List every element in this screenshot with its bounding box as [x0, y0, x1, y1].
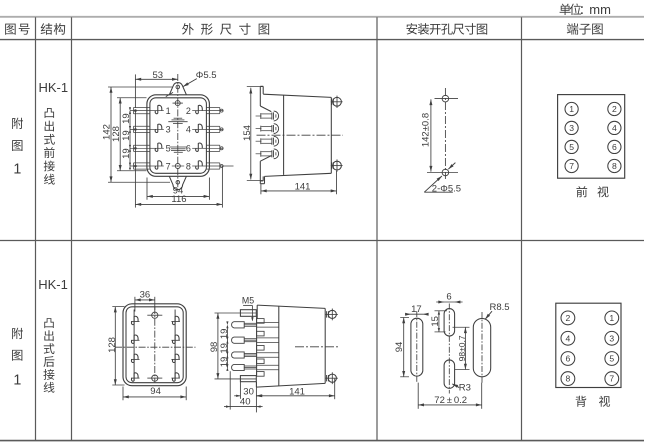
svg-text:36: 36 — [140, 290, 151, 301]
svg-text:3: 3 — [569, 123, 574, 133]
svg-text:19: 19 — [219, 329, 230, 340]
svg-text:R8.5: R8.5 — [490, 302, 510, 313]
svg-text:98±0.7: 98±0.7 — [457, 335, 467, 361]
svg-text:8: 8 — [612, 161, 617, 171]
svg-text:2: 2 — [612, 104, 617, 114]
svg-text:6: 6 — [566, 354, 571, 364]
svg-text:141: 141 — [289, 386, 305, 397]
svg-text:1: 1 — [13, 162, 21, 178]
svg-text:1: 1 — [569, 104, 574, 114]
svg-text:6: 6 — [186, 144, 191, 154]
svg-text:1: 1 — [13, 372, 21, 388]
svg-text:8: 8 — [566, 374, 571, 384]
svg-text:5: 5 — [609, 354, 614, 364]
svg-text:mm: mm — [589, 2, 611, 17]
svg-text:4: 4 — [612, 123, 617, 133]
svg-text:19: 19 — [121, 113, 132, 124]
svg-text:7: 7 — [166, 161, 171, 171]
svg-text:4: 4 — [566, 333, 571, 343]
svg-text:141: 141 — [295, 181, 311, 192]
svg-text:1: 1 — [166, 106, 171, 116]
svg-text:2-Φ5.5: 2-Φ5.5 — [432, 183, 461, 194]
svg-text:5: 5 — [166, 144, 171, 154]
svg-text:94: 94 — [394, 342, 405, 353]
svg-text:17: 17 — [411, 304, 422, 315]
svg-text:2: 2 — [566, 313, 571, 323]
svg-text:5: 5 — [569, 142, 574, 152]
svg-text:HK-1: HK-1 — [38, 277, 68, 292]
svg-text:142±0.8: 142±0.8 — [421, 113, 432, 147]
svg-text:94: 94 — [150, 386, 161, 397]
svg-text:3: 3 — [166, 125, 171, 135]
svg-text:19: 19 — [219, 357, 230, 368]
svg-text:19: 19 — [121, 130, 132, 141]
svg-text:4: 4 — [186, 125, 191, 135]
svg-text:7: 7 — [569, 161, 574, 171]
svg-text:R3: R3 — [459, 383, 471, 394]
svg-text:53: 53 — [153, 70, 164, 81]
svg-text:1: 1 — [609, 313, 614, 323]
svg-text:7: 7 — [609, 374, 614, 384]
svg-text:HK-1: HK-1 — [38, 80, 68, 95]
svg-text:15: 15 — [430, 316, 441, 327]
svg-text:8: 8 — [186, 161, 191, 171]
svg-text:3: 3 — [609, 333, 614, 343]
svg-text:116: 116 — [171, 194, 186, 205]
svg-text:128: 128 — [107, 337, 118, 353]
svg-text:19: 19 — [121, 148, 132, 159]
svg-text:M5: M5 — [242, 296, 254, 306]
svg-text:2: 2 — [186, 106, 191, 116]
svg-text:6: 6 — [446, 292, 451, 303]
svg-text:154: 154 — [242, 125, 253, 141]
svg-text:6: 6 — [612, 142, 617, 152]
svg-text:Φ5.5: Φ5.5 — [196, 70, 217, 81]
svg-text:19: 19 — [219, 343, 230, 354]
svg-text:72 ± 0.2: 72 ± 0.2 — [434, 395, 467, 406]
svg-text:40: 40 — [240, 397, 251, 408]
